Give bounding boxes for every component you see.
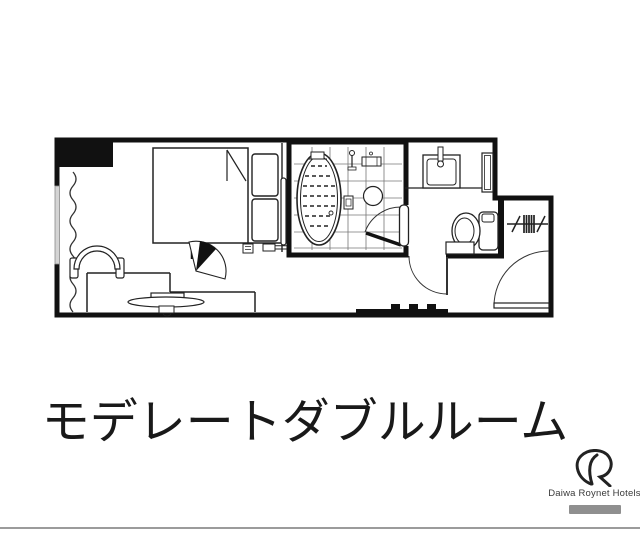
pillow-icon [252, 199, 278, 241]
bedside-console-icon [243, 244, 287, 253]
logo-tagline-box [569, 505, 621, 514]
toilet-door-icon [409, 256, 447, 295]
bathtub-icon [297, 153, 341, 245]
wall-panel-icon [281, 178, 286, 245]
window-icon [54, 186, 61, 264]
shower-icon [348, 151, 356, 171]
bath-shelf-icon [362, 152, 381, 166]
room-type-title: モデレートダブルルーム [0, 392, 625, 454]
bath-stool-icon [364, 187, 383, 206]
swing-door-icon [189, 241, 226, 279]
double-bed-icon [153, 143, 282, 252]
faucet-icon [438, 147, 444, 167]
entrance-sill-icon [356, 304, 448, 315]
brand-logo: Daiwa Roynet Hotels [547, 449, 640, 514]
floorplan-page: モデレートダブルルーム Daiwa Roynet Hotels [0, 0, 640, 533]
bathroom-door-icon [365, 205, 410, 246]
curtain-icon [70, 172, 76, 312]
daiwa-roynet-logo-icon [572, 449, 618, 487]
vanity-counter-icon [405, 147, 493, 192]
entrance-door-icon [494, 251, 549, 308]
bottom-divider [0, 527, 640, 529]
step-box-icon [446, 242, 474, 254]
pillow-icon [252, 154, 278, 196]
brand-name: Daiwa Roynet Hotels [547, 488, 640, 499]
pillar-icon [57, 140, 113, 167]
hanger-rack-icon [507, 215, 548, 233]
